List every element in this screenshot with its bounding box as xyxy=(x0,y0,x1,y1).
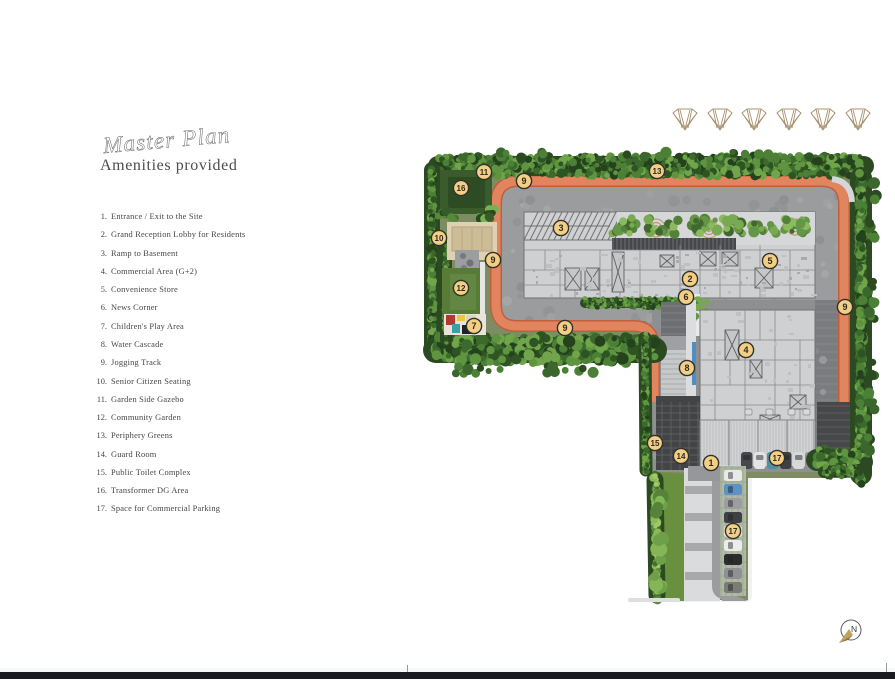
svg-text:15: 15 xyxy=(651,439,660,448)
svg-text:6: 6 xyxy=(683,292,688,302)
svg-text:17: 17 xyxy=(773,454,782,463)
svg-text:12: 12 xyxy=(457,284,466,293)
svg-text:9: 9 xyxy=(562,323,567,333)
svg-text:14: 14 xyxy=(677,452,686,461)
svg-text:4: 4 xyxy=(743,345,748,355)
svg-text:2: 2 xyxy=(687,274,692,284)
svg-text:N: N xyxy=(851,624,857,634)
svg-text:16: 16 xyxy=(457,184,466,193)
svg-text:9: 9 xyxy=(490,255,495,265)
svg-text:7: 7 xyxy=(471,321,476,331)
svg-text:3: 3 xyxy=(558,223,563,233)
svg-text:9: 9 xyxy=(842,302,847,312)
svg-text:9: 9 xyxy=(521,176,526,186)
svg-text:13: 13 xyxy=(653,167,662,176)
svg-text:17: 17 xyxy=(729,527,738,536)
svg-text:11: 11 xyxy=(480,168,489,177)
svg-text:5: 5 xyxy=(767,256,772,266)
svg-text:10: 10 xyxy=(435,234,444,243)
svg-text:1: 1 xyxy=(708,458,713,468)
svg-text:8: 8 xyxy=(684,363,689,373)
